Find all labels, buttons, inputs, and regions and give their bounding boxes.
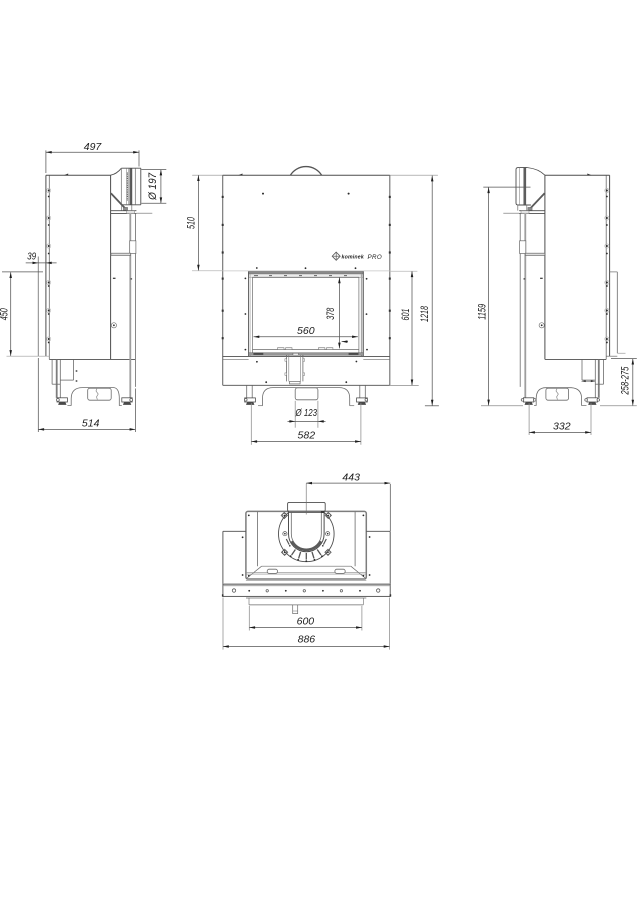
svg-text:601: 601 (400, 309, 412, 321)
svg-text:378: 378 (325, 307, 337, 320)
svg-text:332: 332 (553, 421, 571, 433)
svg-text:582: 582 (298, 430, 316, 442)
svg-text:510: 510 (186, 216, 198, 229)
svg-text:450: 450 (0, 308, 11, 321)
svg-text:258-275: 258-275 (619, 366, 631, 395)
svg-text:PRO: PRO (368, 254, 383, 261)
svg-text:560: 560 (297, 325, 315, 337)
svg-text:514: 514 (82, 418, 100, 430)
svg-text:600: 600 (297, 616, 315, 628)
svg-text:Ø 197: Ø 197 (147, 172, 159, 201)
svg-text:39: 39 (27, 251, 36, 263)
svg-text:kominek: kominek (342, 254, 365, 260)
svg-text:1218: 1218 (419, 305, 431, 322)
svg-text:443: 443 (342, 471, 360, 483)
svg-text:1159: 1159 (477, 304, 489, 320)
svg-text:Ø 123: Ø 123 (295, 407, 317, 419)
svg-text:886: 886 (298, 633, 316, 645)
svg-text:497: 497 (84, 141, 103, 153)
